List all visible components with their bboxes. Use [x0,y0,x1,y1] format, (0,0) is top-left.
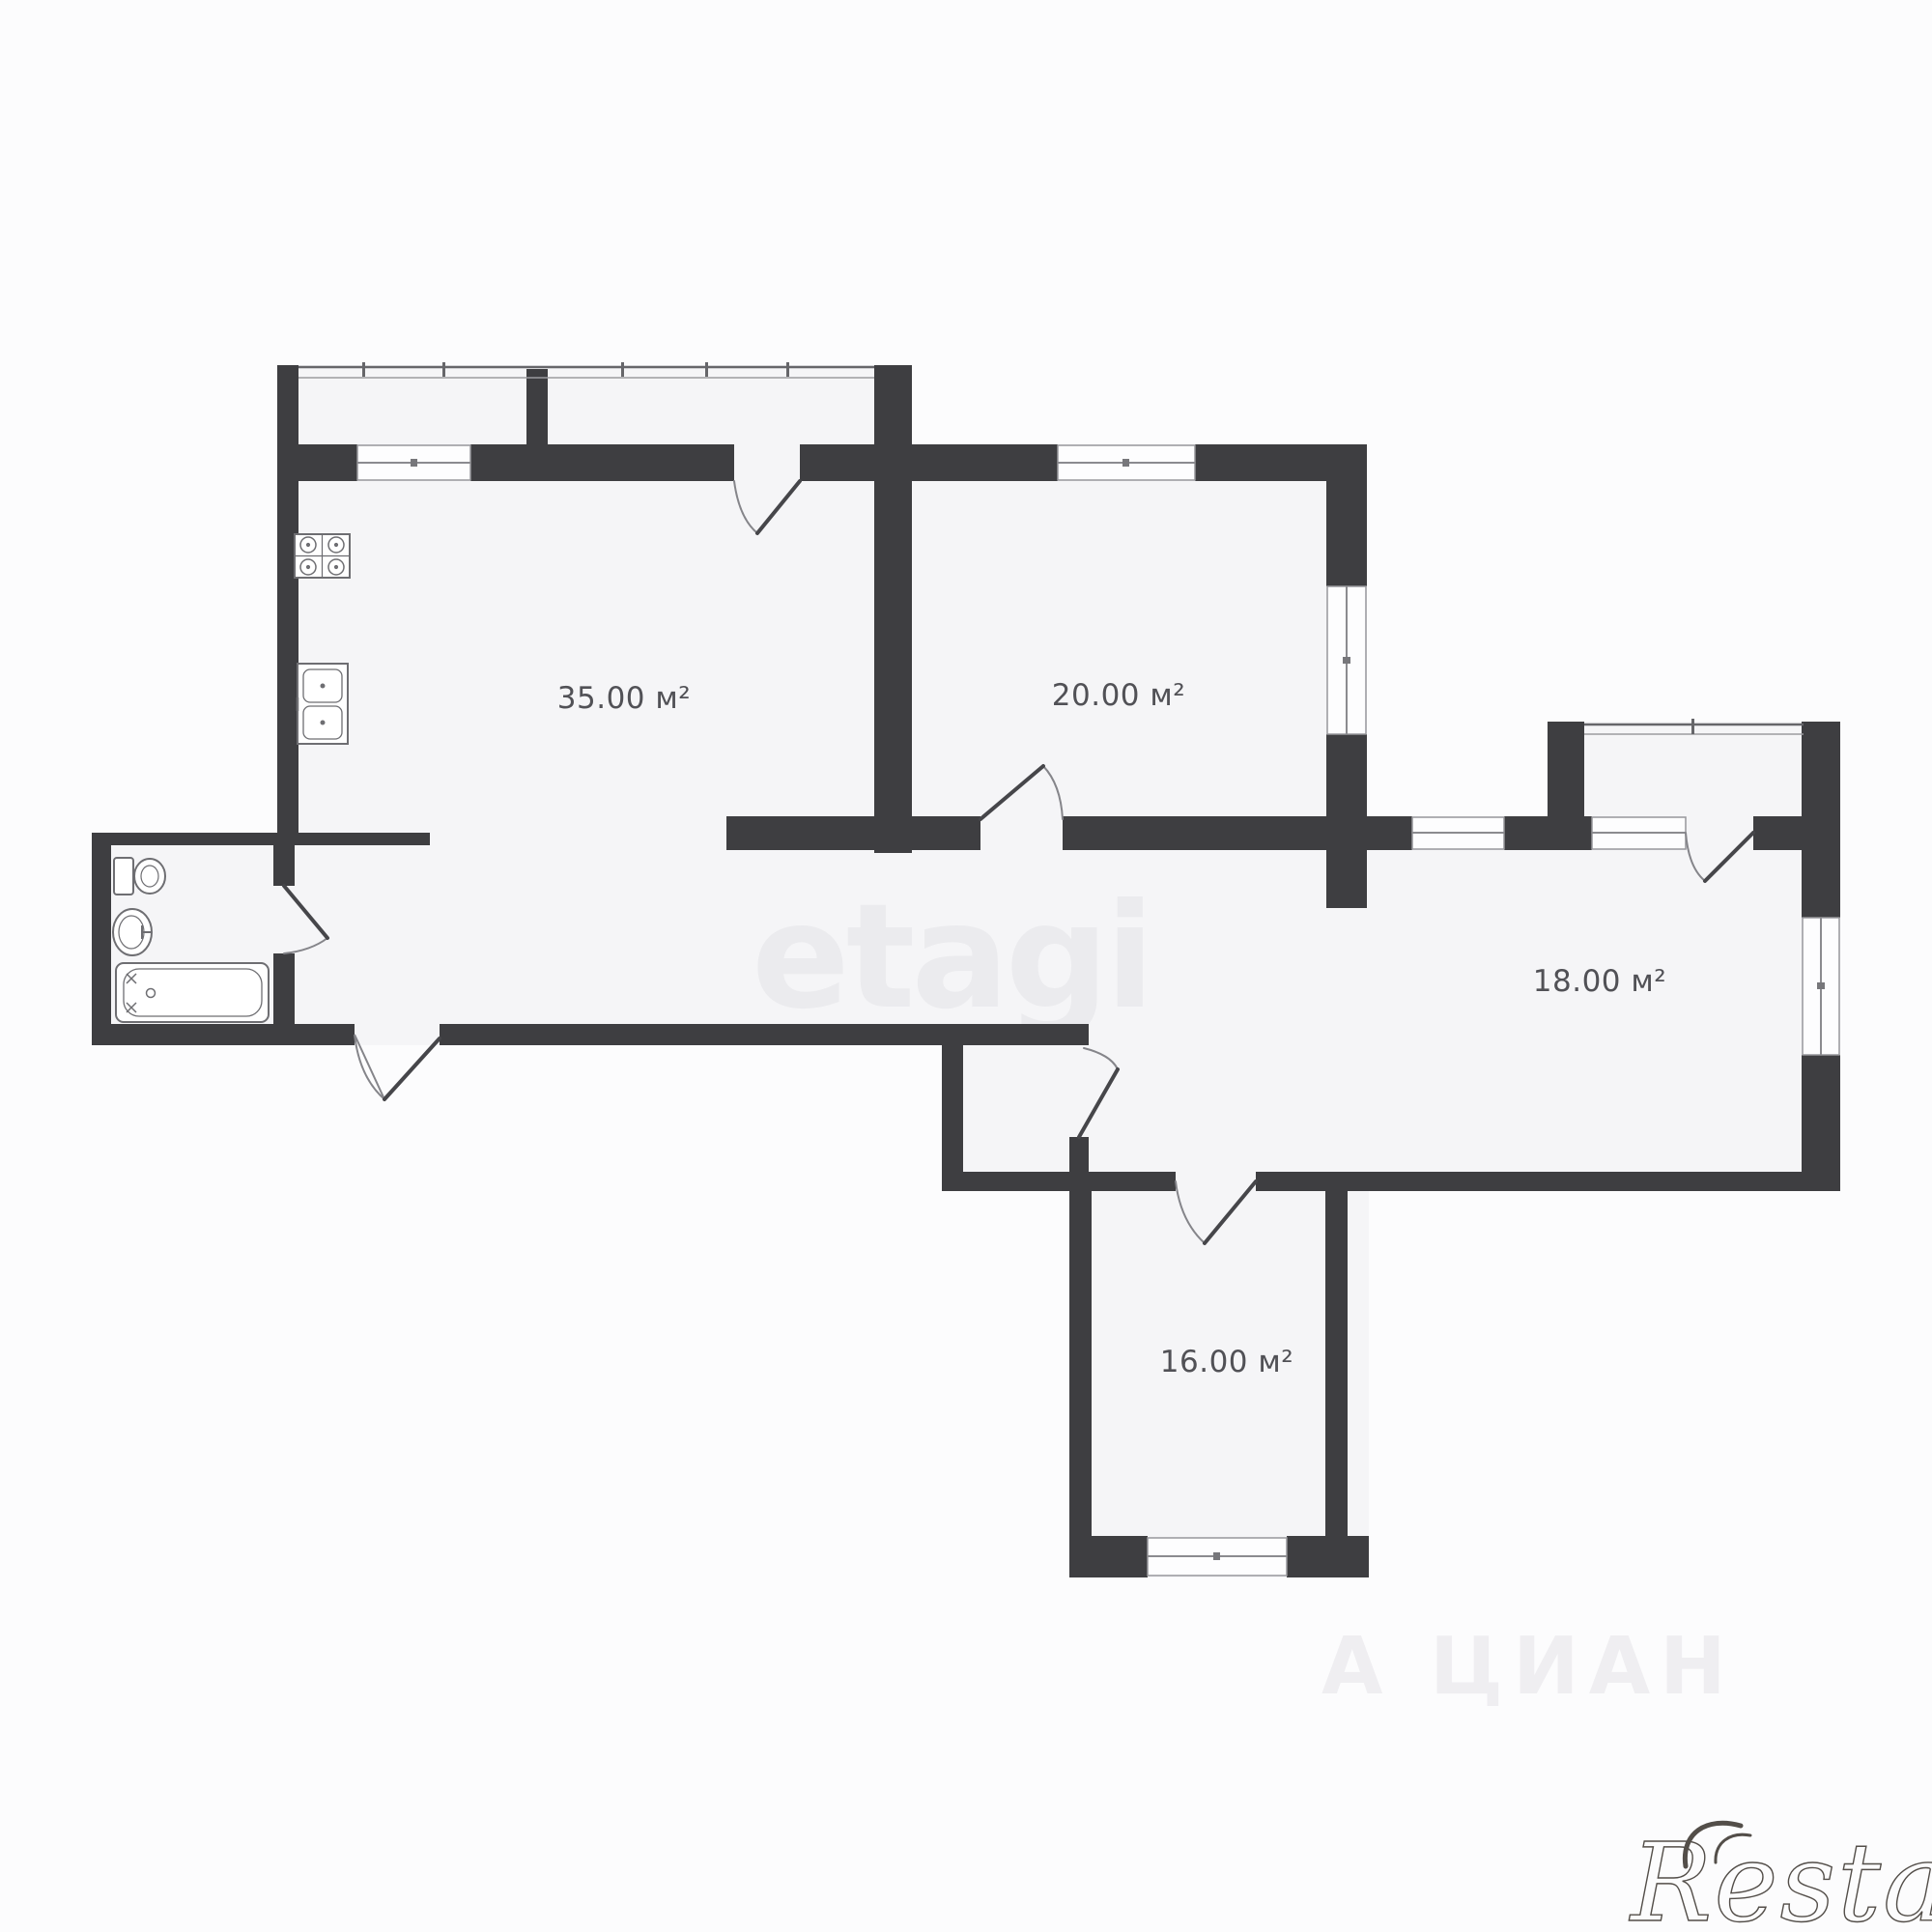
stove-icon [295,534,350,578]
watermark-cian: А ЦИАН [1321,1621,1736,1713]
toilet-icon [114,858,165,895]
watermark-etagi: etagi [752,873,1151,1041]
logo-restate: Restate [1629,1821,1932,1932]
room-label-16: 16.00 м² [1160,1345,1293,1379]
window [1412,817,1504,849]
wash-basin-icon [113,909,152,955]
room-label-35: 35.00 м² [557,681,691,716]
logo-restate-text: Restate [1629,1821,1932,1932]
window [1592,817,1686,849]
window [1803,918,1839,1055]
room-label-18: 18.00 м² [1533,964,1666,999]
window [357,445,470,480]
window [1058,445,1195,480]
floor-plan: etagi [0,0,1932,1932]
window [1148,1538,1287,1576]
kitchen-sink-icon [298,664,348,744]
bathtub-icon [116,963,269,1022]
floorplan-page: etagi [0,0,1932,1932]
room-label-20: 20.00 м² [1052,678,1185,713]
window [1327,586,1366,734]
